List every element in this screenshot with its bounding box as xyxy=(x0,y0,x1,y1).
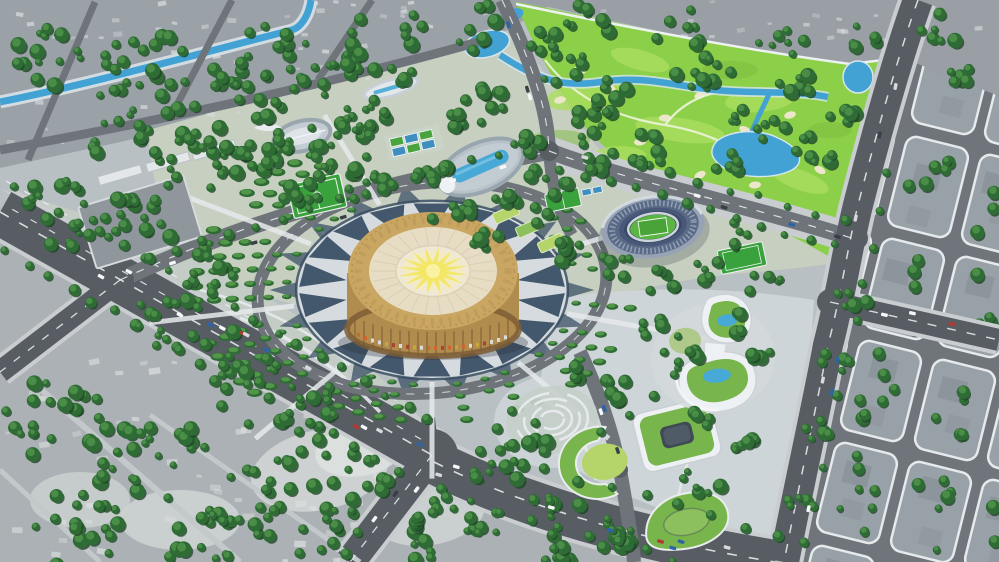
aerial-city-render-svg xyxy=(0,0,999,562)
aerial-city-render xyxy=(0,0,999,562)
golf-pond-east xyxy=(843,61,873,93)
